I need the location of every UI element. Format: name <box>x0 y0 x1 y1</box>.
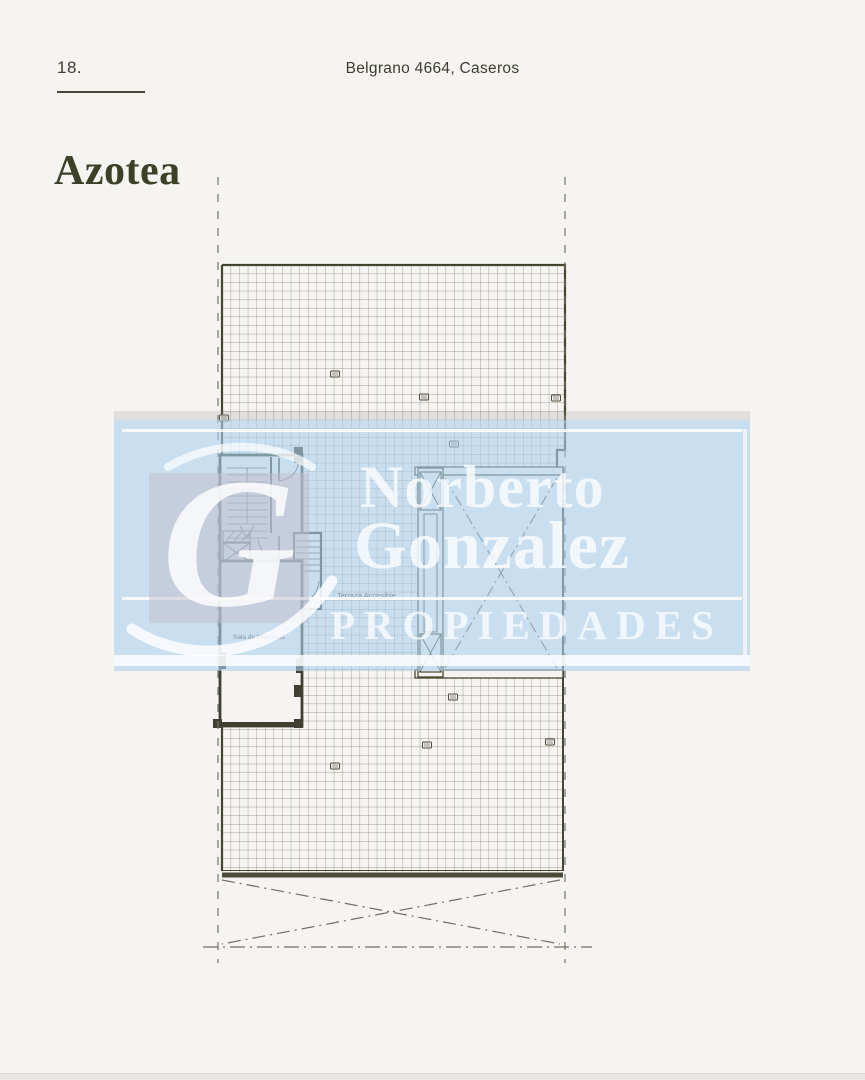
machine-room-label: Sala de Maquinas <box>233 634 286 641</box>
page-bottom-edge <box>0 1073 865 1080</box>
shaft-void <box>415 467 563 678</box>
stairwell-block <box>220 455 302 563</box>
brochure-page: 18. Belgrano 4664, Caseros Azotea <box>0 0 865 1080</box>
terrace-label: Terraza Accesible <box>337 591 396 600</box>
floor-plan-drawing: Terraza Accesible Sala de Maquinas <box>0 0 865 1080</box>
